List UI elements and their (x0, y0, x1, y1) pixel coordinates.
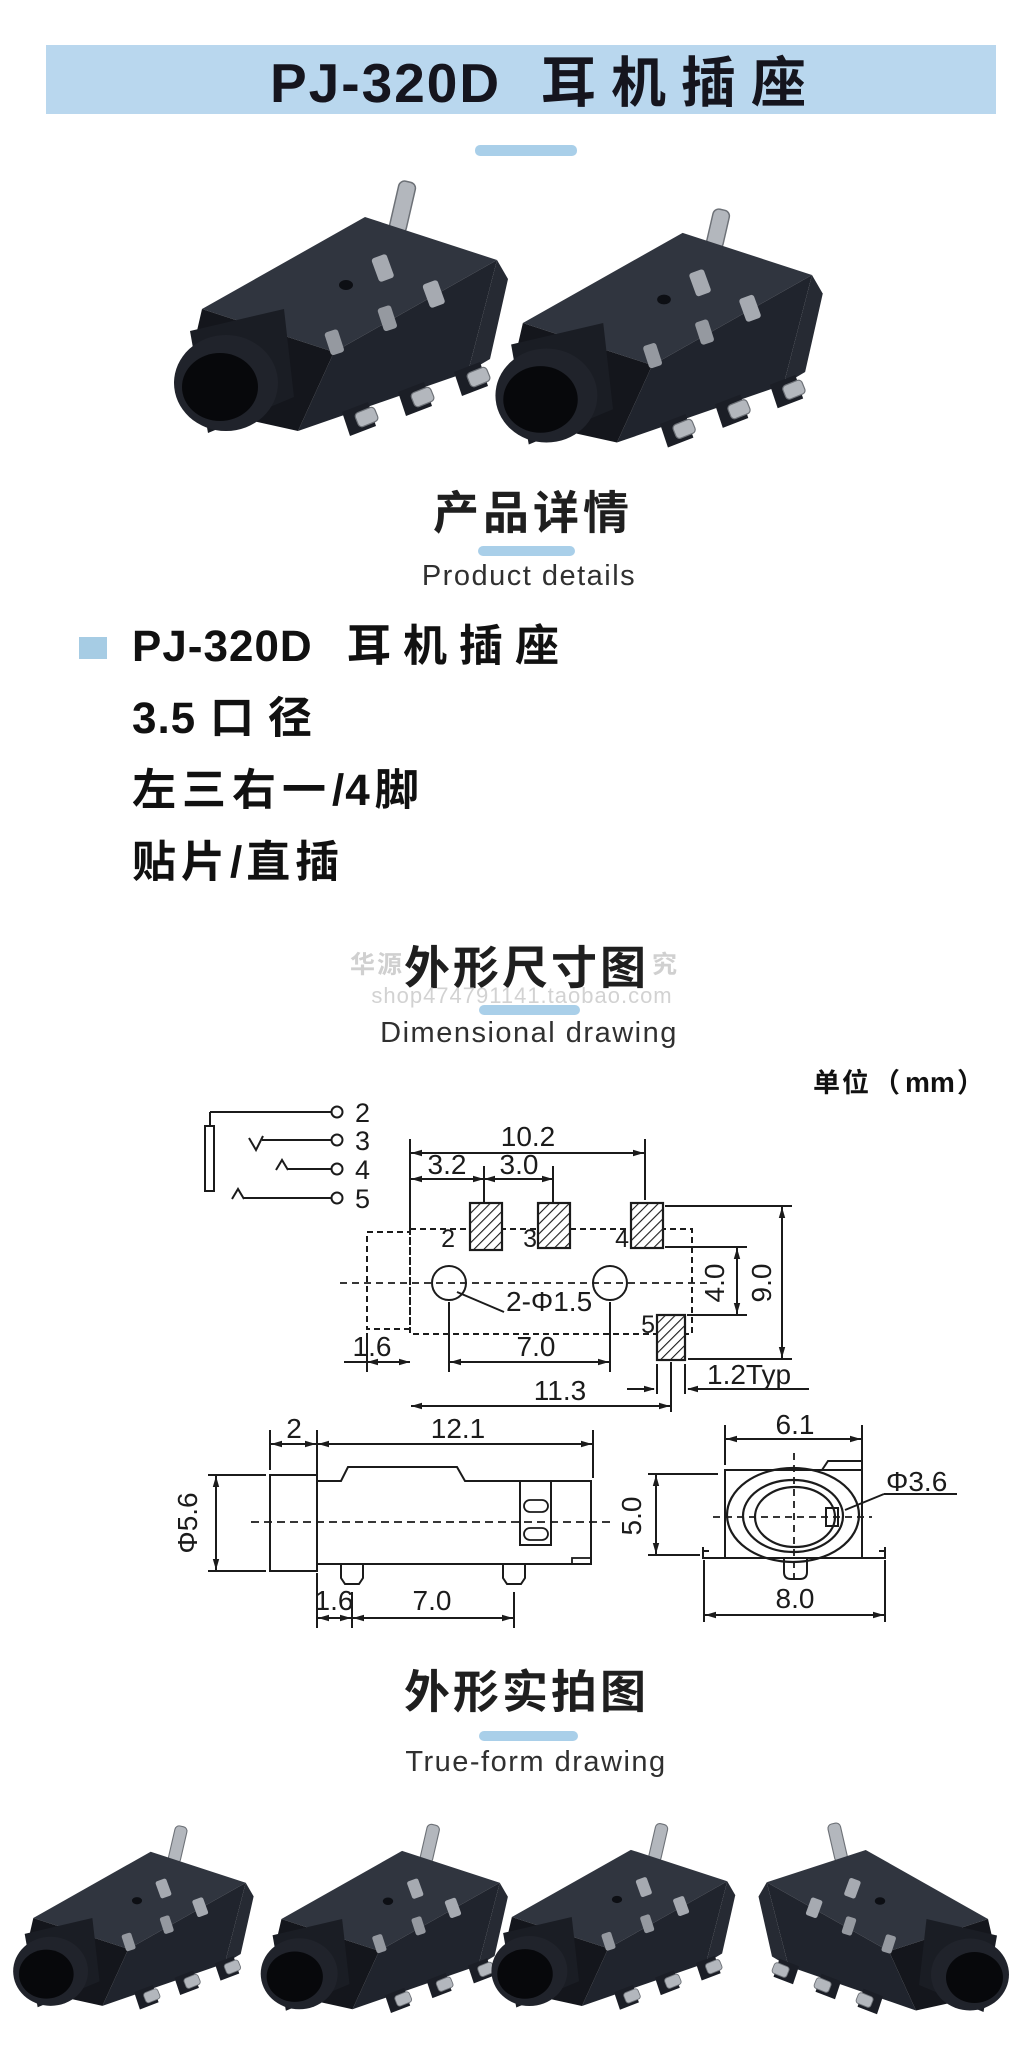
svg-text:1.2Typ: 1.2Typ (707, 1359, 791, 1390)
svg-text:10.2: 10.2 (501, 1121, 556, 1152)
svg-text:5: 5 (355, 1184, 370, 1214)
svg-text:Dimensional drawing: Dimensional drawing (380, 1017, 678, 1049)
svg-text:7.0: 7.0 (413, 1585, 452, 1616)
svg-text:Φ5.6: Φ5.6 (172, 1492, 203, 1553)
svg-text:12.1: 12.1 (431, 1413, 486, 1444)
svg-text:3: 3 (355, 1126, 370, 1156)
svg-text:5: 5 (641, 1311, 655, 1339)
svg-text:shop474791141.taobao.com: shop474791141.taobao.com (371, 983, 672, 1008)
svg-text:3: 3 (523, 1225, 537, 1253)
svg-text:3.0: 3.0 (500, 1149, 539, 1180)
svg-text:6.1: 6.1 (776, 1409, 815, 1440)
svg-text:1.6: 1.6 (353, 1331, 392, 1362)
svg-text:1.6: 1.6 (315, 1585, 354, 1616)
svg-text:2: 2 (286, 1413, 302, 1444)
svg-text:True-form drawing: True-form drawing (405, 1746, 666, 1778)
svg-text:4: 4 (355, 1155, 370, 1185)
svg-text:4.0: 4.0 (699, 1264, 730, 1303)
svg-text:7.0: 7.0 (517, 1331, 556, 1362)
svg-text:8.0: 8.0 (776, 1583, 815, 1614)
svg-text:3.2: 3.2 (428, 1149, 467, 1180)
svg-text:2-Φ1.5: 2-Φ1.5 (506, 1286, 592, 1317)
svg-text:Φ3.6: Φ3.6 (886, 1466, 947, 1497)
svg-text:2: 2 (355, 1098, 370, 1128)
svg-text:5.0: 5.0 (616, 1497, 647, 1536)
svg-text:9.0: 9.0 (746, 1264, 777, 1303)
svg-text:Product details: Product details (422, 560, 636, 592)
svg-text:4: 4 (615, 1225, 629, 1253)
svg-text:11.3: 11.3 (534, 1375, 586, 1406)
svg-text:2: 2 (441, 1225, 455, 1253)
